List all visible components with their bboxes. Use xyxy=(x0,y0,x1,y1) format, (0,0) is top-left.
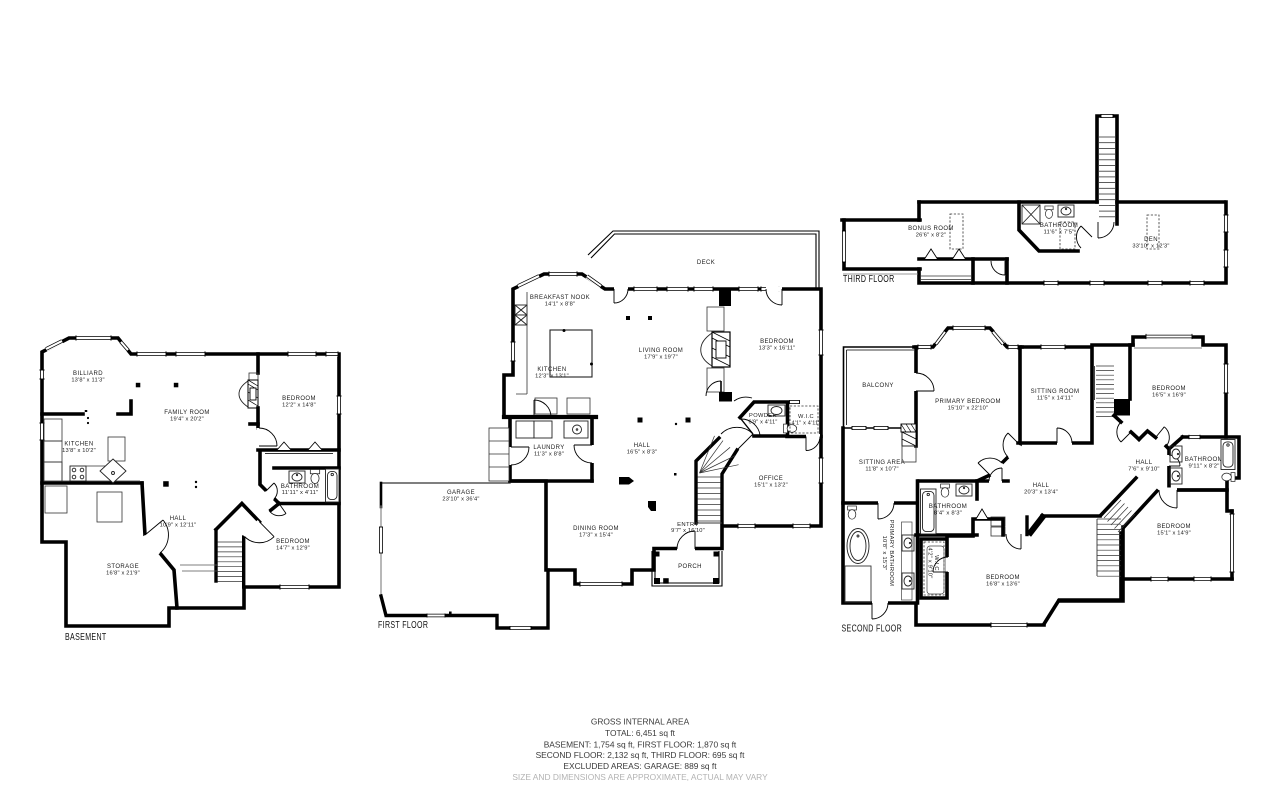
svg-text:16'8" x 13'6": 16'8" x 13'6" xyxy=(986,581,1020,587)
svg-text:10'8" x 15'3": 10'8" x 15'3" xyxy=(881,536,887,571)
svg-text:SITTING ROOM: SITTING ROOM xyxy=(1031,389,1080,395)
svg-text:HALL: HALL xyxy=(634,443,651,449)
svg-text:BATHROOM: BATHROOM xyxy=(1040,222,1079,229)
svg-text:19'4" x 20'2": 19'4" x 20'2" xyxy=(170,416,204,422)
svg-text:SECOND FLOOR: 2,132 sq ft, THI: SECOND FLOOR: 2,132 sq ft, THIRD FLOOR: … xyxy=(536,750,745,760)
svg-text:BILLIARD: BILLIARD xyxy=(73,371,103,377)
svg-text:EXCLUDED AREAS: GARAGE: 889 sq: EXCLUDED AREAS: GARAGE: 889 sq ft xyxy=(563,761,717,771)
svg-text:8'4" x 8'3": 8'4" x 8'3" xyxy=(934,510,962,516)
svg-text:PORCH: PORCH xyxy=(678,564,702,570)
svg-text:15'1" x 14'9": 15'1" x 14'9" xyxy=(1157,530,1191,536)
svg-text:BONUS ROOM: BONUS ROOM xyxy=(908,226,954,232)
svg-text:17'9" x 19'7": 17'9" x 19'7" xyxy=(644,354,678,360)
svg-text:33'10" x 12'3": 33'10" x 12'3" xyxy=(1132,243,1169,249)
svg-text:7'6" x 9'10": 7'6" x 9'10" xyxy=(1128,466,1159,472)
svg-text:11'6" x 7'5": 11'6" x 7'5" xyxy=(1044,229,1075,235)
svg-text:DEN: DEN xyxy=(1144,237,1158,243)
svg-text:PRIMARY BEDROOM: PRIMARY BEDROOM xyxy=(935,399,1001,405)
svg-text:OFFICE: OFFICE xyxy=(759,476,783,482)
svg-text:BATHROOM: BATHROOM xyxy=(929,503,968,510)
svg-text:W.I.C: W.I.C xyxy=(798,414,814,420)
svg-text:ENTRY: ENTRY xyxy=(677,522,699,528)
svg-text:SIZE AND DIMENSIONS ARE APPROX: SIZE AND DIMENSIONS ARE APPROXIMATE, ACT… xyxy=(512,772,768,782)
svg-text:FAMILY ROOM: FAMILY ROOM xyxy=(164,410,210,416)
svg-text:BALCONY: BALCONY xyxy=(862,383,893,389)
svg-text:BEDROOM: BEDROOM xyxy=(986,575,1020,581)
svg-text:14'1" x 8'8": 14'1" x 8'8" xyxy=(545,301,575,307)
svg-text:TOTAL: 6,451 sq ft: TOTAL: 6,451 sq ft xyxy=(605,728,676,738)
svg-text:15'1" x 13'2": 15'1" x 13'2" xyxy=(754,482,788,488)
svg-text:11'5" x 14'11": 11'5" x 14'11" xyxy=(1037,395,1073,401)
svg-text:11'11" x 4'11": 11'11" x 4'11" xyxy=(282,490,319,496)
svg-text:BEDROOM: BEDROOM xyxy=(282,396,316,402)
svg-text:16'8" x 21'9": 16'8" x 21'9" xyxy=(106,570,140,576)
svg-text:9'7" x 16'10": 9'7" x 16'10" xyxy=(671,528,705,534)
svg-text:LAUNDRY: LAUNDRY xyxy=(533,445,564,451)
svg-text:16'5" x 8'3": 16'5" x 8'3" xyxy=(627,449,657,455)
svg-text:13'8" x 10'2": 13'8" x 10'2" xyxy=(62,448,96,454)
svg-text:SITTING AREA: SITTING AREA xyxy=(859,460,905,466)
svg-text:THIRD FLOOR: THIRD FLOOR xyxy=(843,273,895,285)
svg-text:BEDROOM: BEDROOM xyxy=(276,539,310,545)
svg-text:BASEMENT: 1,754 sq ft, FIRST F: BASEMENT: 1,754 sq ft, FIRST FLOOR: 1,87… xyxy=(544,739,737,749)
svg-text:11'8" x 10'7": 11'8" x 10'7" xyxy=(865,466,898,472)
svg-text:KITCHEN: KITCHEN xyxy=(64,442,93,448)
svg-text:14'7" x 12'9": 14'7" x 12'9" xyxy=(276,545,310,551)
svg-text:13'8" x 11'3": 13'8" x 11'3" xyxy=(71,377,104,383)
svg-text:9'11" x 8'2": 9'11" x 8'2" xyxy=(1189,463,1220,469)
svg-text:11'3" x 8'8": 11'3" x 8'8" xyxy=(534,451,564,457)
svg-text:16'5" x 16'9": 16'5" x 16'9" xyxy=(1152,392,1186,398)
svg-text:STORAGE: STORAGE xyxy=(107,564,139,570)
svg-text:6'9" x 4'11": 6'9" x 4'11" xyxy=(748,419,777,425)
svg-text:20'3" x 13'4": 20'3" x 13'4" xyxy=(1024,489,1058,495)
svg-text:23'10" x 36'4": 23'10" x 36'4" xyxy=(442,496,479,502)
svg-text:26'6" x 8'2": 26'6" x 8'2" xyxy=(916,232,946,238)
svg-text:DINING ROOM: DINING ROOM xyxy=(573,526,619,532)
svg-text:12'3" x 13'1": 12'3" x 13'1" xyxy=(535,373,569,379)
svg-text:4'1" x 4'11": 4'1" x 4'11" xyxy=(791,420,820,426)
svg-text:BEDROOM: BEDROOM xyxy=(1152,386,1186,392)
svg-text:LIVING ROOM: LIVING ROOM xyxy=(639,348,683,354)
svg-text:HALL: HALL xyxy=(170,516,187,522)
svg-text:BATHROOM: BATHROOM xyxy=(1185,456,1224,463)
svg-text:HALL: HALL xyxy=(1033,483,1050,489)
svg-text:PRIMARY BATHROOM: PRIMARY BATHROOM xyxy=(888,520,894,587)
svg-text:GROSS INTERNAL AREA: GROSS INTERNAL AREA xyxy=(591,717,690,727)
svg-text:BEDROOM: BEDROOM xyxy=(760,339,794,345)
svg-text:4'2" x 9'10": 4'2" x 9'10" xyxy=(927,548,933,579)
svg-text:HALL: HALL xyxy=(1135,459,1152,466)
svg-text:17'3" x 15'4": 17'3" x 15'4" xyxy=(579,532,613,538)
svg-text:13'3" x 16'11": 13'3" x 16'11" xyxy=(759,345,796,351)
svg-text:15'10" x 22'10": 15'10" x 22'10" xyxy=(948,405,989,411)
svg-text:BATHROOM: BATHROOM xyxy=(281,483,320,490)
svg-text:BASEMENT: BASEMENT xyxy=(65,631,107,643)
svg-text:SECOND FLOOR: SECOND FLOOR xyxy=(842,622,903,634)
svg-text:BREAKFAST NOOK: BREAKFAST NOOK xyxy=(530,295,590,301)
svg-text:KITCHEN: KITCHEN xyxy=(537,367,566,373)
svg-text:12'2" x 14'8": 12'2" x 14'8" xyxy=(282,402,316,408)
svg-text:FIRST FLOOR: FIRST FLOOR xyxy=(378,619,428,631)
svg-text:BEDROOM: BEDROOM xyxy=(1157,524,1191,530)
svg-text:DECK: DECK xyxy=(697,260,715,266)
svg-text:GARAGE: GARAGE xyxy=(447,490,475,496)
